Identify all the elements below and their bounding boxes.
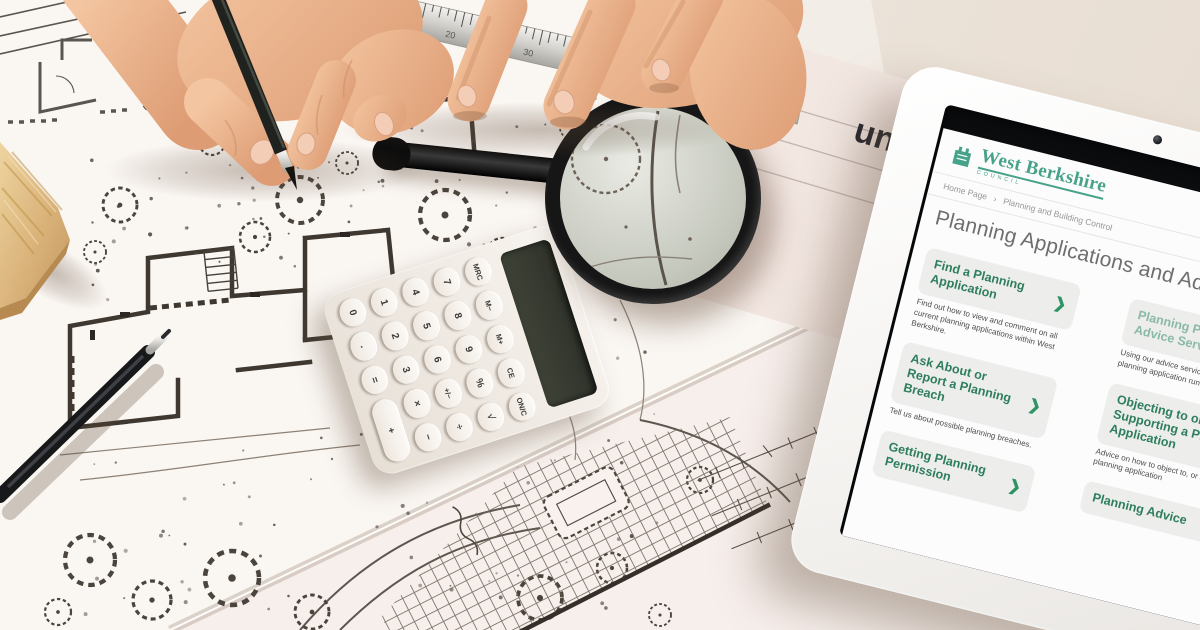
calc-key: 2 — [378, 319, 412, 354]
calc-key: M− — [473, 288, 507, 323]
calc-key: CE — [494, 355, 528, 390]
calc-key: √ — [474, 399, 508, 434]
chevron-right-icon: ❯ — [1027, 395, 1044, 416]
calc-key: 0 — [336, 295, 370, 330]
card-title[interactable]: Planning Advice — [1091, 491, 1189, 529]
calc-key: 4 — [399, 275, 433, 310]
calc-key: 3 — [389, 352, 423, 387]
magnifier-lens — [560, 107, 746, 289]
calc-key: = — [358, 362, 392, 397]
breadcrumb-home-link[interactable]: Home Page — [942, 181, 988, 202]
tablet-camera — [1152, 134, 1163, 145]
calc-key: 7 — [430, 265, 464, 300]
card-column-right: Planning Pre-Application Advice Service … — [1072, 298, 1200, 580]
calc-key: MRC — [462, 254, 496, 289]
chevron-right-icon: ❯ — [1006, 476, 1023, 497]
calc-key: 9 — [452, 332, 486, 367]
magnifier-ring — [545, 92, 761, 304]
calc-key: +/− — [432, 376, 466, 411]
calc-key: 6 — [421, 342, 455, 377]
calc-key: M+ — [484, 322, 518, 357]
card-planning-advice[interactable]: Planning Advice — [1079, 480, 1200, 551]
chevron-right-icon: ❯ — [1052, 293, 1069, 314]
calc-key: × — [400, 386, 434, 421]
calc-key: ON/C — [505, 389, 539, 424]
calc-key: − — [411, 420, 445, 455]
card-title[interactable]: Getting Planning Permission — [883, 440, 1004, 498]
calc-key: ÷ — [443, 409, 477, 444]
council-crest-icon — [949, 139, 977, 170]
calc-key: 1 — [368, 285, 402, 320]
tablet-screen: West Berkshire COUNCIL Home Page › Plann… — [839, 104, 1200, 630]
architect-desk-scene: un — [0, 0, 1200, 630]
calc-key: . — [347, 329, 381, 364]
calc-key: 5 — [410, 308, 444, 343]
breadcrumb-separator-icon: › — [993, 194, 998, 204]
calc-key: % — [463, 366, 497, 401]
calc-key: 8 — [441, 298, 475, 333]
magnifying-glass — [545, 92, 761, 304]
council-webpage: West Berkshire COUNCIL Home Page › Plann… — [842, 128, 1200, 630]
card-column-left: Find a Planning Application ❯ Find out h… — [868, 247, 1081, 526]
